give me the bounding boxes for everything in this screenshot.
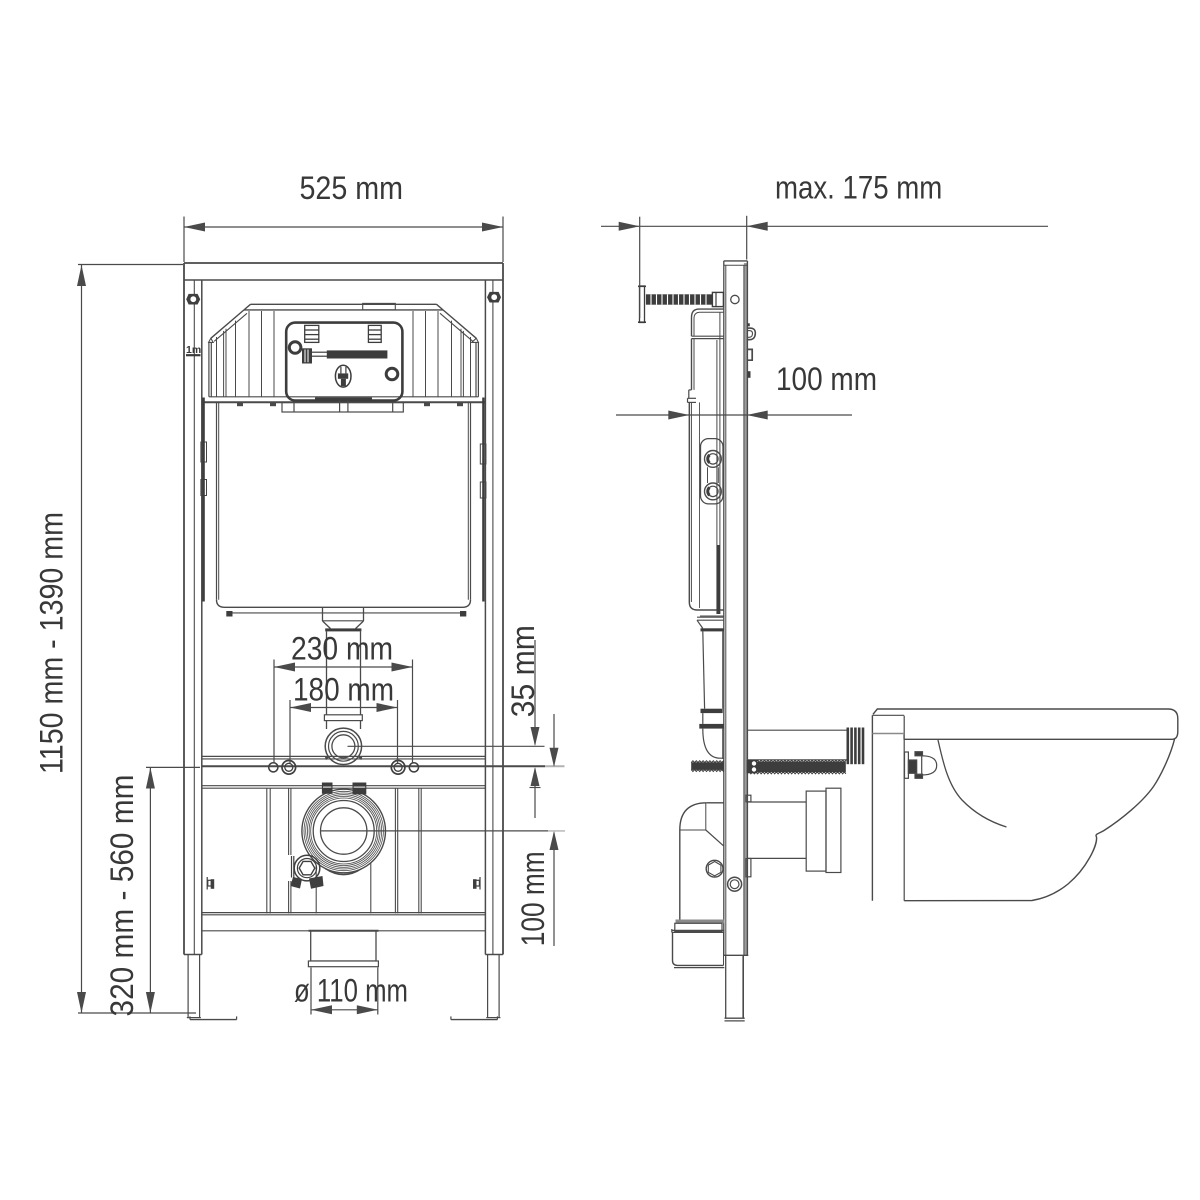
svg-text:1150 mm - 1390 mm: 1150 mm - 1390 mm	[34, 512, 70, 774]
svg-text:180 mm: 180 mm	[293, 672, 394, 708]
svg-text:525 mm: 525 mm	[300, 170, 404, 206]
svg-text:max. 175 mm: max. 175 mm	[775, 169, 942, 205]
svg-text:100 mm: 100 mm	[515, 851, 551, 946]
svg-text:320 mm - 560 mm: 320 mm - 560 mm	[104, 775, 140, 1017]
svg-text:35 mm: 35 mm	[505, 625, 541, 717]
svg-text:230 mm: 230 mm	[291, 631, 393, 667]
svg-text:ø 110 mm: ø 110 mm	[294, 973, 408, 1009]
svg-text:100 mm: 100 mm	[776, 361, 877, 397]
